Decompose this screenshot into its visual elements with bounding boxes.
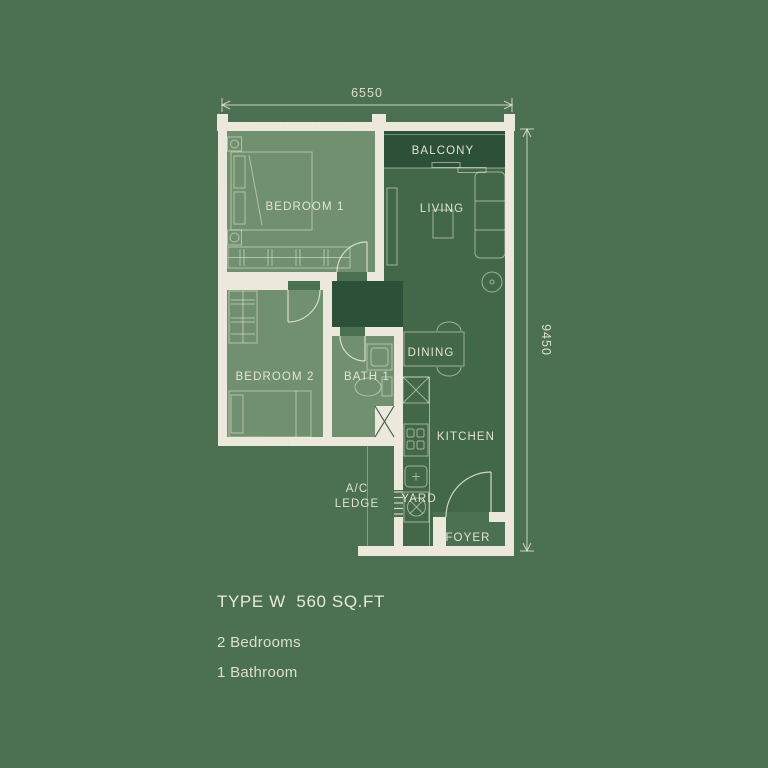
hallway-floor — [332, 281, 403, 327]
wall-bedroom2-right — [323, 290, 332, 446]
wall-bedroom2-top — [227, 281, 288, 290]
unit-bedrooms-text: 2 Bedrooms — [217, 634, 385, 651]
label-foyer: FOYER — [445, 532, 490, 544]
room-kitchen-dining-floor — [403, 281, 505, 512]
label-yard: YARD — [401, 493, 437, 505]
wall-bath-top — [332, 327, 340, 336]
wall-bath-top — [365, 327, 403, 336]
label-bedroom2: BEDROOM 2 — [236, 371, 315, 383]
dimension-height: 9450 — [520, 129, 553, 551]
wall-bedroom1-living — [375, 131, 384, 281]
wall-bath-bottom — [332, 437, 403, 446]
room-bedroom2-floor — [227, 290, 323, 437]
wall-bedroom1-bottom — [367, 272, 384, 281]
wall-top — [218, 122, 514, 131]
unit-details: TYPE W 560 SQ.FT 2 Bedrooms 1 Bathroom — [217, 592, 385, 681]
wall-bedroom2-top — [320, 281, 332, 290]
dimension-width-value: 6550 — [351, 86, 383, 100]
label-bath1: BATH 1 — [344, 371, 390, 383]
label-living: LIVING — [420, 203, 464, 215]
unit-type-title: TYPE W 560 SQ.FT — [217, 592, 385, 612]
wall-bedroom2-bottom — [218, 437, 332, 446]
label-bedroom1: BEDROOM 1 — [266, 201, 345, 213]
wall-right — [505, 122, 514, 556]
wall-yard-foyer — [433, 517, 446, 546]
label-ac-ledge: LEDGE — [335, 498, 380, 510]
label-kitchen: KITCHEN — [437, 431, 495, 443]
label-dining: DINING — [408, 347, 455, 359]
label-ac-ledge: A/C — [346, 483, 368, 495]
duct-icon — [375, 406, 394, 437]
wall-service — [394, 517, 403, 546]
wall-bedroom1-bottom — [227, 272, 337, 281]
dimension-width: 6550 — [222, 86, 512, 112]
unit-bathrooms-text: 1 Bathroom — [217, 664, 385, 681]
dimension-height-value: 9450 — [539, 324, 553, 356]
wall-service — [394, 336, 403, 490]
label-balcony: BALCONY — [412, 145, 475, 157]
wall-bottom — [358, 546, 514, 556]
room-living-floor — [384, 168, 505, 281]
floor-plan-page: 6550 9450 BALCONY LIVING BEDROOM 1 BEDRO… — [0, 0, 768, 768]
